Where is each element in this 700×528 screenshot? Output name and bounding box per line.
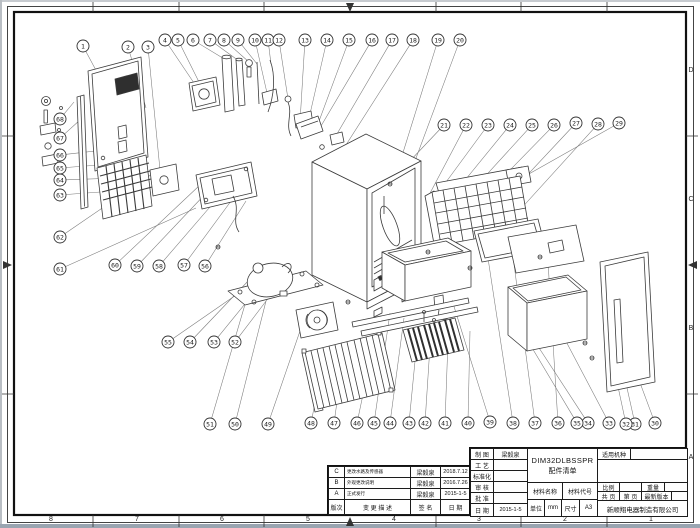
balloon-7: 7 (204, 34, 216, 46)
hinge-plate (150, 164, 179, 196)
compressor-assembly (228, 259, 323, 305)
svg-text:54: 54 (186, 338, 194, 346)
svg-text:60: 60 (111, 261, 119, 269)
right-side-panel (600, 252, 655, 392)
svg-text:47: 47 (330, 419, 338, 427)
svg-text:41: 41 (441, 419, 449, 427)
zone-row-d: D (686, 67, 696, 75)
balloon-14: 14 (321, 34, 333, 46)
balloon-60: 60 (109, 259, 121, 271)
svg-text:4: 4 (163, 36, 167, 44)
svg-text:30: 30 (651, 419, 659, 427)
svg-text:36: 36 (554, 419, 562, 427)
svg-text:53: 53 (210, 338, 218, 346)
svg-text:68: 68 (56, 115, 64, 123)
svg-text:35: 35 (573, 419, 581, 427)
balloon-56: 56 (199, 260, 211, 272)
balloon-5: 5 (172, 34, 184, 46)
svg-text:46: 46 (353, 419, 361, 427)
rev-header-rev: 版次 (328, 499, 345, 515)
company-name: 新顺翔电器制造有限公司 (597, 500, 688, 517)
svg-text:16: 16 (368, 36, 376, 44)
balloon-21: 21 (438, 119, 450, 131)
tb-size-value: A3 (579, 499, 598, 517)
balloon-19: 19 (432, 34, 444, 46)
balloon-64: 64 (54, 174, 66, 186)
balloon-37: 37 (529, 417, 541, 429)
tb-unit-label: 单位 (527, 499, 545, 517)
balloon-4: 4 (159, 34, 171, 46)
balloon-62: 62 (54, 231, 66, 243)
svg-text:45: 45 (370, 419, 378, 427)
svg-text:12: 12 (275, 36, 283, 44)
svg-text:61: 61 (56, 265, 64, 273)
balloon-20: 20 (454, 34, 466, 46)
tb-title-cell: DIM32DLBSSPR 配件清单 (527, 448, 598, 483)
tb-applicable-area (597, 459, 688, 483)
balloon-52: 52 (229, 336, 241, 348)
svg-text:56: 56 (201, 262, 209, 270)
tb-material-name-label: 材料名称 (527, 482, 563, 500)
svg-text:27: 27 (572, 119, 580, 127)
balloon-28: 28 (592, 118, 604, 130)
zone-col-2: 2 (560, 516, 570, 524)
balloon-17: 17 (386, 34, 398, 46)
zone-col-5: 5 (303, 516, 313, 524)
zone-col-8: 8 (46, 516, 56, 524)
balloon-50: 50 (229, 418, 241, 430)
balloon-25: 25 (526, 119, 538, 131)
rev-header-desc: 变 更 描 述 (344, 499, 411, 515)
parts-list-title: 配件清单 (549, 466, 577, 476)
balloon-26: 26 (548, 119, 560, 131)
balloon-59: 59 (131, 260, 143, 272)
drawing-sheet: { "sheet": { "zones": { "columns": ["8",… (0, 0, 700, 528)
zone-col-7: 7 (132, 516, 142, 524)
balloon-61: 61 (54, 263, 66, 275)
svg-text:17: 17 (388, 36, 396, 44)
balloon-43: 43 (403, 417, 415, 429)
balloon-55: 55 (162, 336, 174, 348)
svg-text:59: 59 (133, 262, 141, 270)
svg-text:58: 58 (155, 262, 163, 270)
svg-text:43: 43 (405, 419, 413, 427)
balloon-36: 36 (552, 417, 564, 429)
balloon-42: 42 (419, 417, 431, 429)
svg-text:5: 5 (176, 36, 180, 44)
svg-text:15: 15 (345, 36, 353, 44)
balloon-33: 33 (603, 417, 615, 429)
svg-text:8: 8 (222, 36, 226, 44)
balloon-1: 1 (77, 40, 89, 52)
svg-text:24: 24 (506, 121, 514, 129)
svg-text:10: 10 (251, 36, 259, 44)
tb-unit-value: mm (544, 499, 562, 517)
balloon-24: 24 (504, 119, 516, 131)
svg-text:66: 66 (56, 151, 64, 159)
svg-text:6: 6 (191, 36, 195, 44)
balloon-57: 57 (178, 259, 190, 271)
rev-header-sign: 签 名 (410, 499, 441, 515)
zone-col-1: 1 (646, 516, 656, 524)
condenser-coil (302, 331, 395, 412)
part-number: DIM32DLBSSPR (532, 456, 594, 465)
balloon-38: 38 (507, 417, 519, 429)
svg-text:34: 34 (584, 419, 592, 427)
svg-text:20: 20 (456, 36, 464, 44)
balloon-45: 45 (368, 417, 380, 429)
balloon-51: 51 (204, 418, 216, 430)
balloon-8: 8 (218, 34, 230, 46)
balloon-66: 66 (54, 149, 66, 161)
svg-text:11: 11 (264, 36, 272, 44)
tb-material-code-label: 材料代号 (562, 482, 598, 500)
svg-text:48: 48 (307, 419, 315, 427)
svg-text:22: 22 (462, 121, 470, 129)
balloon-34: 34 (582, 417, 594, 429)
balloon-68: 68 (54, 113, 66, 125)
balloon-47: 47 (328, 417, 340, 429)
balloon-18: 18 (407, 34, 419, 46)
svg-text:39: 39 (486, 418, 494, 426)
svg-text:1: 1 (81, 42, 85, 50)
balloon-32: 32 (620, 418, 632, 430)
balloon-15: 15 (343, 34, 355, 46)
balloon-58: 58 (153, 260, 165, 272)
svg-text:55: 55 (164, 338, 172, 346)
svg-text:7: 7 (208, 36, 212, 44)
tb-size-label: 尺寸 (561, 499, 580, 517)
svg-text:62: 62 (56, 233, 64, 241)
balloon-46: 46 (351, 417, 363, 429)
svg-text:33: 33 (605, 419, 613, 427)
balloon-41: 41 (439, 417, 451, 429)
svg-text:19: 19 (434, 36, 442, 44)
svg-text:26: 26 (550, 121, 558, 129)
svg-text:37: 37 (531, 419, 539, 427)
balloon-11: 11 (262, 34, 274, 46)
door-side-strip (77, 95, 88, 209)
balloon-65: 65 (54, 162, 66, 174)
svg-text:42: 42 (421, 419, 429, 427)
door-panel (88, 57, 148, 171)
svg-text:25: 25 (528, 121, 536, 129)
svg-text:51: 51 (206, 420, 214, 428)
svg-text:29: 29 (615, 119, 623, 127)
balloon-67: 67 (54, 132, 66, 144)
balloon-40: 40 (462, 417, 474, 429)
svg-text:28: 28 (594, 120, 602, 128)
balloon-2: 2 (122, 41, 134, 53)
balloon-10: 10 (249, 34, 261, 46)
zone-row-c: C (686, 196, 696, 204)
svg-text:44: 44 (386, 419, 394, 427)
top-small-parts (189, 55, 344, 149)
svg-text:2: 2 (126, 43, 130, 51)
balloon-48: 48 (305, 417, 317, 429)
title-block: 制 图 梁毅泉 工 艺 标准化 审 核 批 准 日 期 2015-1-5 DIM… (469, 447, 687, 516)
balloon-53: 53 (208, 336, 220, 348)
svg-text:18: 18 (409, 36, 417, 44)
svg-text:21: 21 (440, 121, 448, 129)
balloon-16: 16 (366, 34, 378, 46)
svg-text:40: 40 (464, 419, 472, 427)
condenser-fan (296, 302, 338, 338)
balloon-30: 30 (649, 417, 661, 429)
svg-text:49: 49 (264, 420, 272, 428)
svg-text:52: 52 (231, 338, 239, 346)
balloon-54: 54 (184, 336, 196, 348)
svg-text:67: 67 (56, 134, 64, 142)
balloon-6: 6 (187, 34, 199, 46)
svg-text:32: 32 (622, 420, 630, 428)
balloon-12: 12 (273, 34, 285, 46)
balloon-3: 3 (142, 41, 154, 53)
svg-text:64: 64 (56, 176, 64, 184)
balloon-29: 29 (613, 117, 625, 129)
tb-date-label: 日 期 (470, 503, 494, 517)
svg-text:14: 14 (323, 36, 331, 44)
rev-header-date: 日 期 (440, 499, 471, 515)
balloon-44: 44 (384, 417, 396, 429)
zone-col-4: 4 (389, 516, 399, 524)
svg-text:23: 23 (484, 121, 492, 129)
svg-text:63: 63 (56, 191, 64, 199)
zone-row-b: B (686, 325, 696, 333)
control-bracket (196, 162, 257, 232)
svg-text:38: 38 (509, 419, 517, 427)
balloon-63: 63 (54, 189, 66, 201)
balloon-27: 27 (570, 117, 582, 129)
tb-date-value: 2015-1-5 (493, 503, 528, 517)
svg-text:57: 57 (180, 261, 188, 269)
zone-col-3: 3 (474, 516, 484, 524)
svg-text:65: 65 (56, 164, 64, 172)
ice-bucket (508, 275, 587, 351)
svg-text:13: 13 (301, 36, 309, 44)
svg-text:3: 3 (146, 43, 150, 51)
balloon-22: 22 (460, 119, 472, 131)
balloon-39: 39 (484, 416, 496, 428)
parts-layer (40, 55, 655, 412)
zone-col-6: 6 (217, 516, 227, 524)
balloon-13: 13 (299, 34, 311, 46)
revision-table: C 更改水路及传感器 梁毅泉 2018.7.12 B 外观更改说明 梁毅泉 20… (327, 465, 470, 516)
balloon-9: 9 (232, 34, 244, 46)
svg-text:9: 9 (236, 36, 240, 44)
svg-text:50: 50 (231, 420, 239, 428)
balloon-49: 49 (262, 418, 274, 430)
balloon-35: 35 (571, 417, 583, 429)
balloon-23: 23 (482, 119, 494, 131)
